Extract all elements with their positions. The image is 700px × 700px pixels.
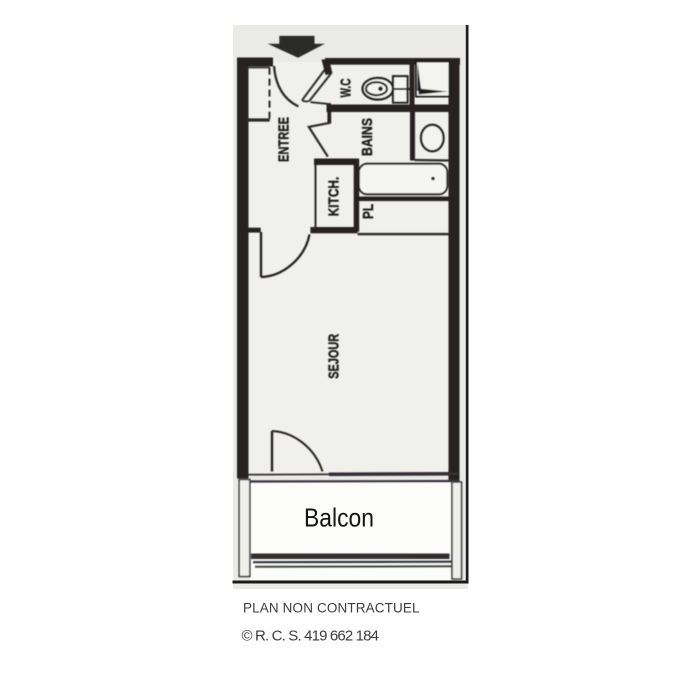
svg-text:ENTREE: ENTREE [276, 117, 293, 162]
svg-text:W.C: W.C [338, 78, 355, 97]
svg-text:© R. C. S. 419 662 184: © R. C. S. 419 662 184 [242, 628, 380, 645]
svg-text:SEJOUR: SEJOUR [325, 334, 342, 379]
svg-text:Balcon: Balcon [304, 504, 374, 533]
svg-text:PL: PL [360, 204, 377, 219]
svg-text:BAINS: BAINS [359, 118, 376, 156]
svg-text:KITCH.: KITCH. [326, 177, 343, 217]
svg-text:PLAN NON CONTRACTUEL: PLAN NON CONTRACTUEL [243, 601, 420, 616]
